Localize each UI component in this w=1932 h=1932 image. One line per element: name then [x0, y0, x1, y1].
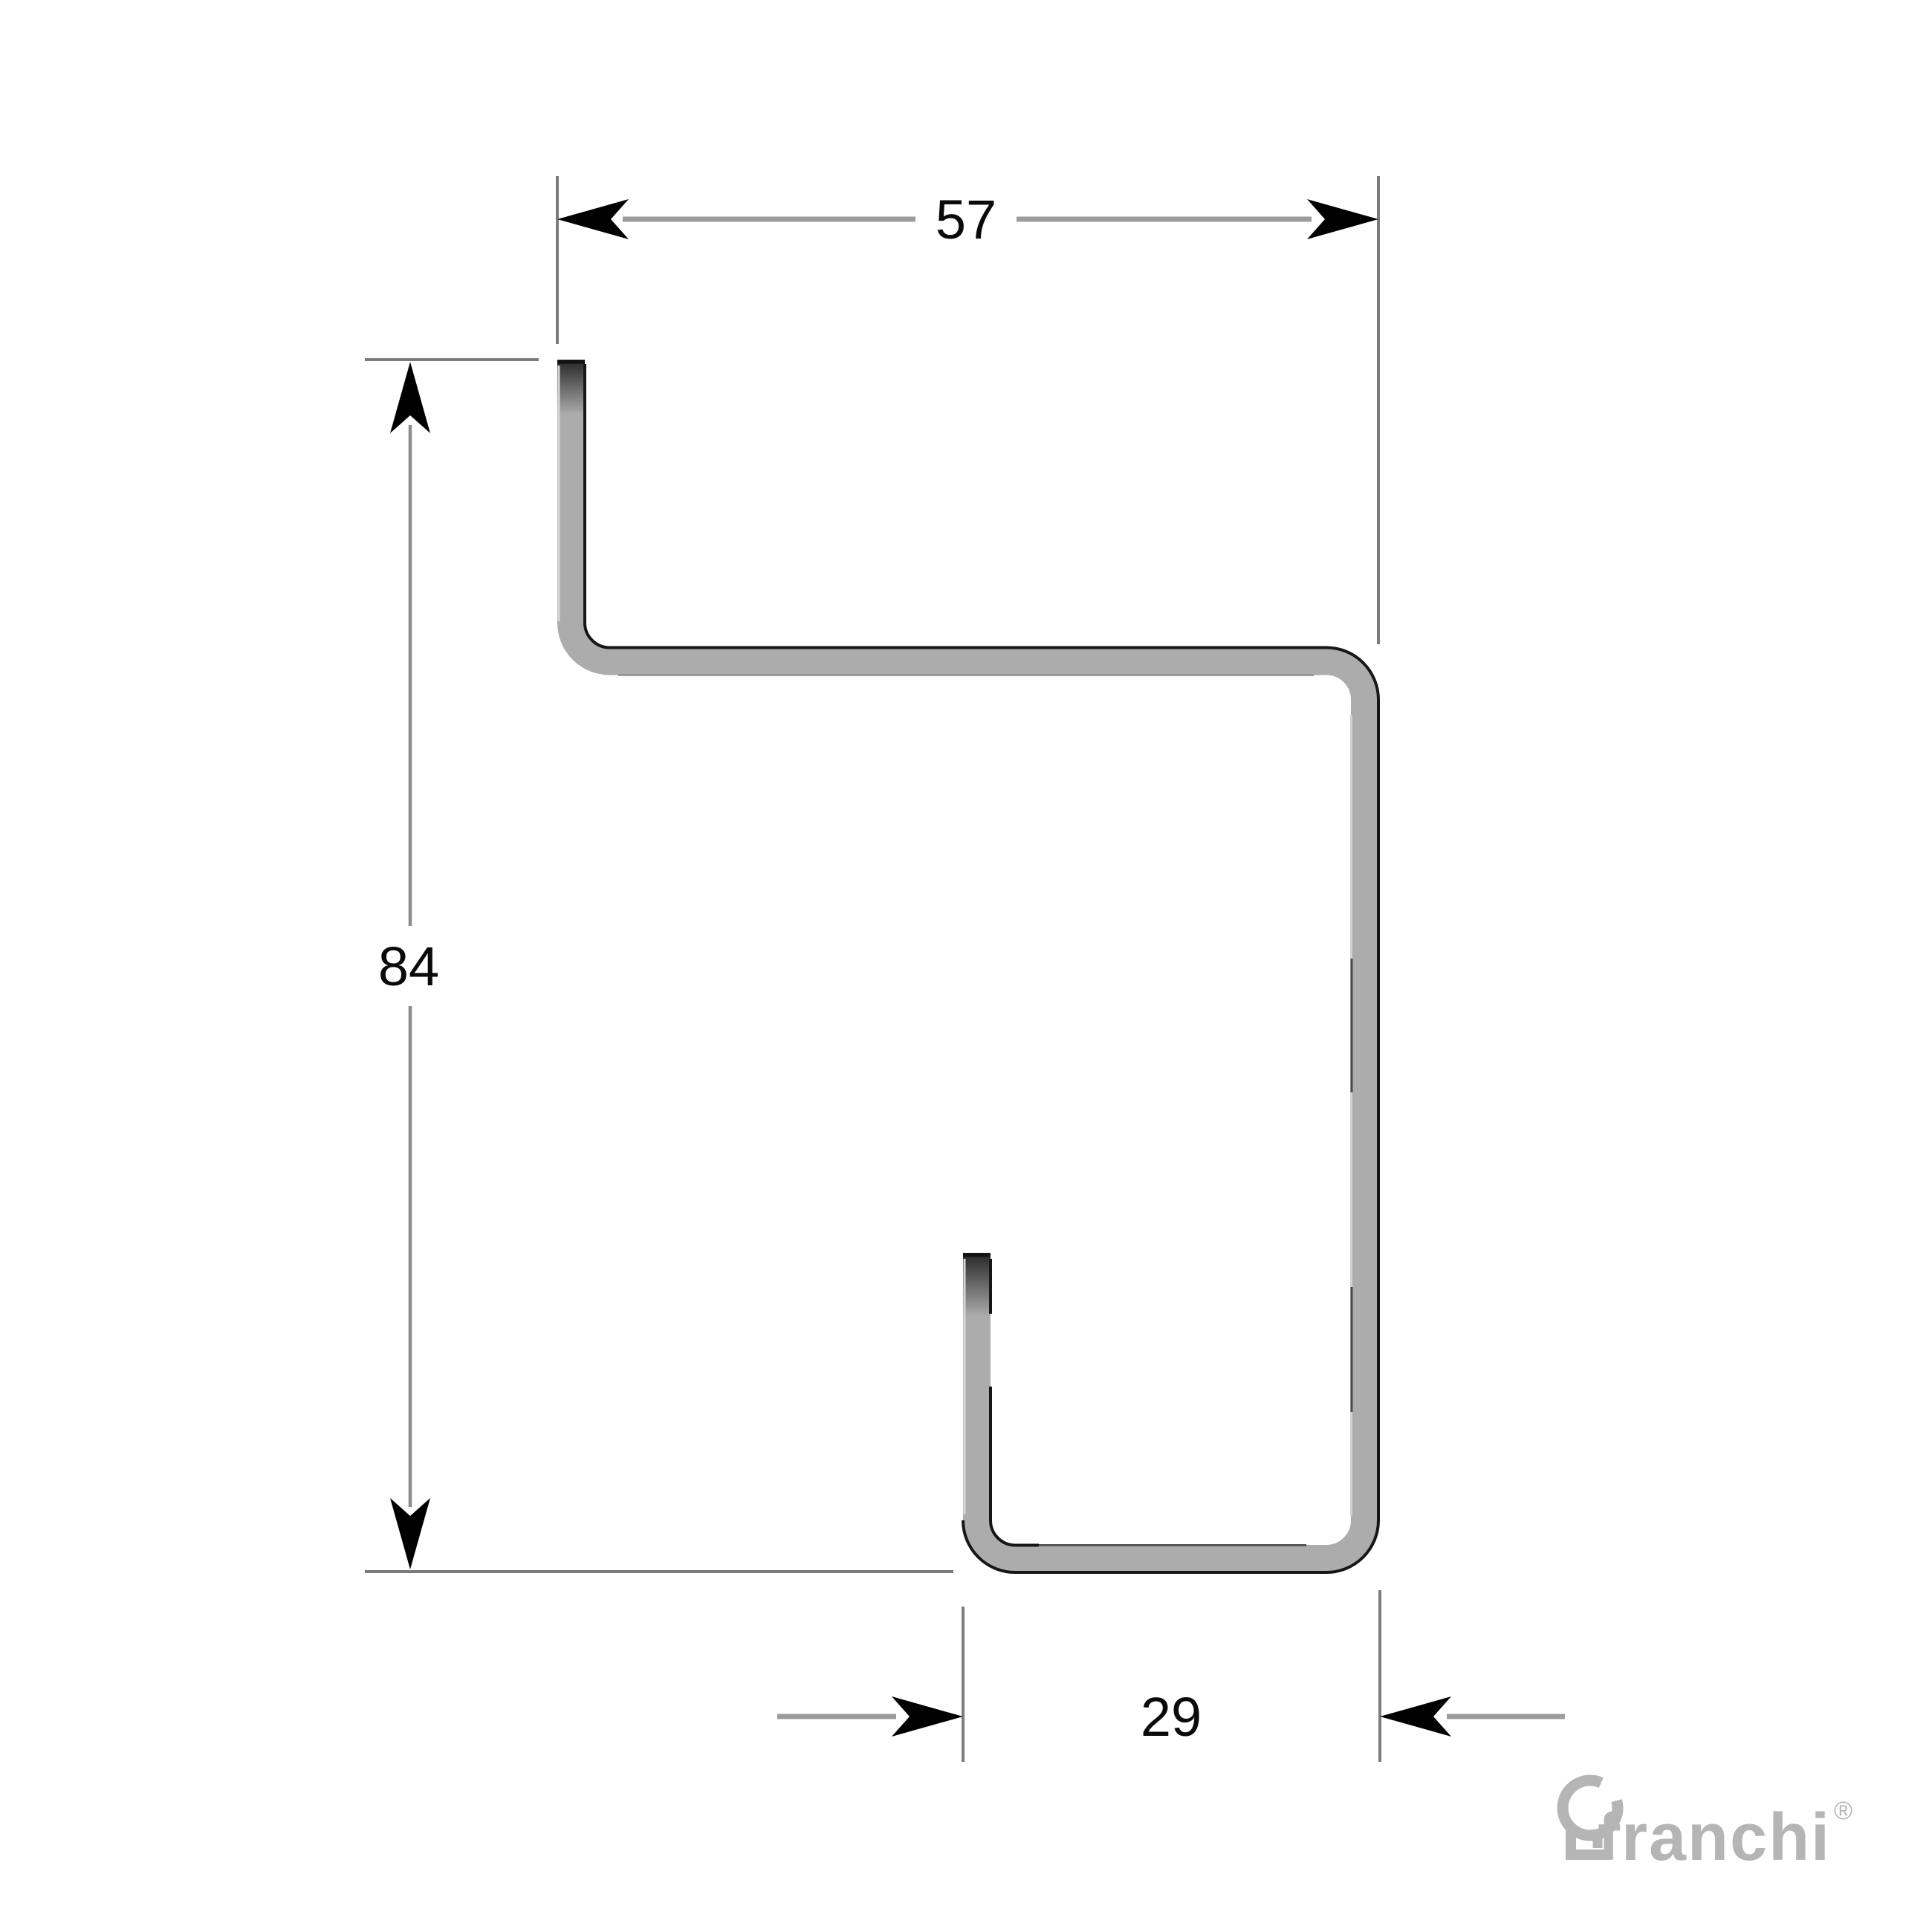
bottom-stub-cap	[963, 1253, 991, 1317]
technical-drawing: 57 84 29 franchi ®	[0, 0, 1932, 1932]
profile-body	[571, 360, 1365, 1559]
registered-trademark-icon: ®	[1834, 1797, 1852, 1825]
dimension-label-84: 84	[378, 936, 439, 997]
arrowhead-84-top	[390, 362, 430, 433]
profile-edge-inner-top	[585, 364, 1326, 648]
top-stub-cap	[557, 360, 585, 415]
arrowhead-29-left	[892, 1696, 963, 1737]
dimension-label-57: 57	[936, 189, 996, 250]
dimension-84: 84	[365, 360, 953, 1572]
dimension-29: 29	[777, 1590, 1565, 1762]
franchi-logo: franchi ®	[1563, 1780, 1852, 1875]
arrowhead-29-right	[1380, 1696, 1451, 1737]
arrowhead-57-right	[1307, 199, 1378, 239]
arrowhead-57-left	[557, 199, 629, 239]
bottom-stub-edge-lower	[991, 1387, 1039, 1546]
profile-edge-outer	[963, 648, 1378, 1573]
dimension-57: 57	[557, 176, 1378, 644]
profile-shape	[557, 360, 1378, 1572]
arrowhead-84-bottom	[390, 1498, 430, 1569]
dimension-label-29: 29	[1141, 1686, 1202, 1748]
logo-wordmark: franchi	[1598, 1800, 1831, 1875]
